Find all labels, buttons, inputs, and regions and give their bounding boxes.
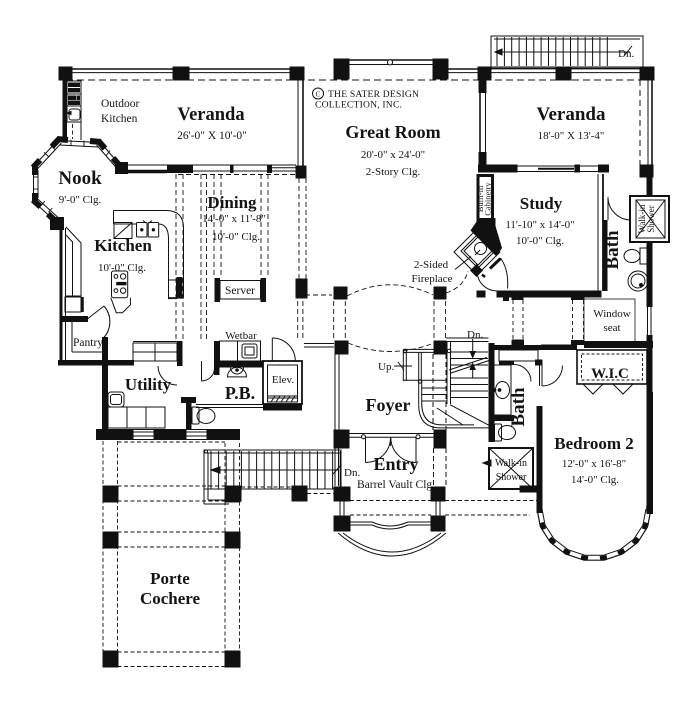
svg-text:14'-0" x 11'-8": 14'-0" x 11'-8" [202,213,266,225]
svg-text:Nook: Nook [58,168,102,189]
svg-text:Dn.: Dn. [344,467,360,479]
svg-text:10'-0" Clg.: 10'-0" Clg. [516,235,564,247]
svg-text:Porte: Porte [150,569,190,588]
svg-text:Outdoor: Outdoor [101,98,140,110]
svg-text:Veranda: Veranda [537,104,606,125]
svg-text:9'-0" Clg.: 9'-0" Clg. [59,194,102,206]
svg-text:Kitchen: Kitchen [101,113,138,125]
svg-text:14'-0" Clg.: 14'-0" Clg. [571,474,619,486]
svg-text:Dn.: Dn. [618,48,634,60]
svg-text:10'-0" Clg.: 10'-0" Clg. [98,262,146,274]
svg-text:26'-0" X 10'-0": 26'-0" X 10'-0" [177,130,247,142]
svg-text:W.I.C: W.I.C [591,366,629,382]
svg-text:P.B.: P.B. [225,383,255,403]
svg-text:Utility: Utility [125,375,172,394]
svg-text:Cochere: Cochere [140,589,201,608]
svg-text:Barrel Vault Clg.: Barrel Vault Clg. [357,479,435,491]
svg-text:Veranda: Veranda [177,105,244,125]
svg-text:Pantry: Pantry [73,337,103,349]
svg-text:Foyer: Foyer [366,395,411,415]
svg-text:Dining: Dining [207,193,257,212]
svg-text:Shower: Shower [496,472,527,483]
svg-text:Walk-in: Walk-in [495,458,527,469]
svg-text:2-Sided: 2-Sided [414,259,449,271]
svg-text:2-Story Clg.: 2-Story Clg. [366,166,421,178]
svg-text:Bath: Bath [602,230,623,270]
svg-text:seat: seat [603,322,620,334]
svg-text:20'-0" x 24'-0": 20'-0" x 24'-0" [361,149,425,161]
svg-text:18'-0" X 13'-4": 18'-0" X 13'-4" [538,130,605,142]
svg-text:Wetbar: Wetbar [225,330,257,342]
svg-text:Server: Server [225,285,255,297]
svg-text:Shower: Shower [646,205,656,233]
svg-text:Entry: Entry [374,454,419,474]
svg-text:10'-0" Clg.: 10'-0" Clg. [212,231,260,243]
svg-text:Dn.: Dn. [467,329,483,341]
svg-text:THE SATER DESIGN: THE SATER DESIGN [328,89,419,100]
svg-text:Up.: Up. [378,361,394,373]
svg-text:Study: Study [520,194,563,213]
svg-text:Window: Window [593,308,630,320]
svg-text:C: C [315,90,320,99]
svg-text:Great Room: Great Room [345,122,440,142]
svg-text:COLLECTION, INC.: COLLECTION, INC. [315,100,402,111]
svg-text:Bath: Bath [508,387,529,427]
svg-text:Elev.: Elev. [272,374,294,386]
svg-text:Cabinetry: Cabinetry [483,181,493,215]
svg-text:11'-10" x 14'-0": 11'-10" x 14'-0" [505,219,574,231]
svg-text:Bedroom 2: Bedroom 2 [554,434,634,453]
svg-text:12'-0" x 16'-8": 12'-0" x 16'-8" [562,458,626,470]
svg-text:Fireplace: Fireplace [412,273,453,285]
